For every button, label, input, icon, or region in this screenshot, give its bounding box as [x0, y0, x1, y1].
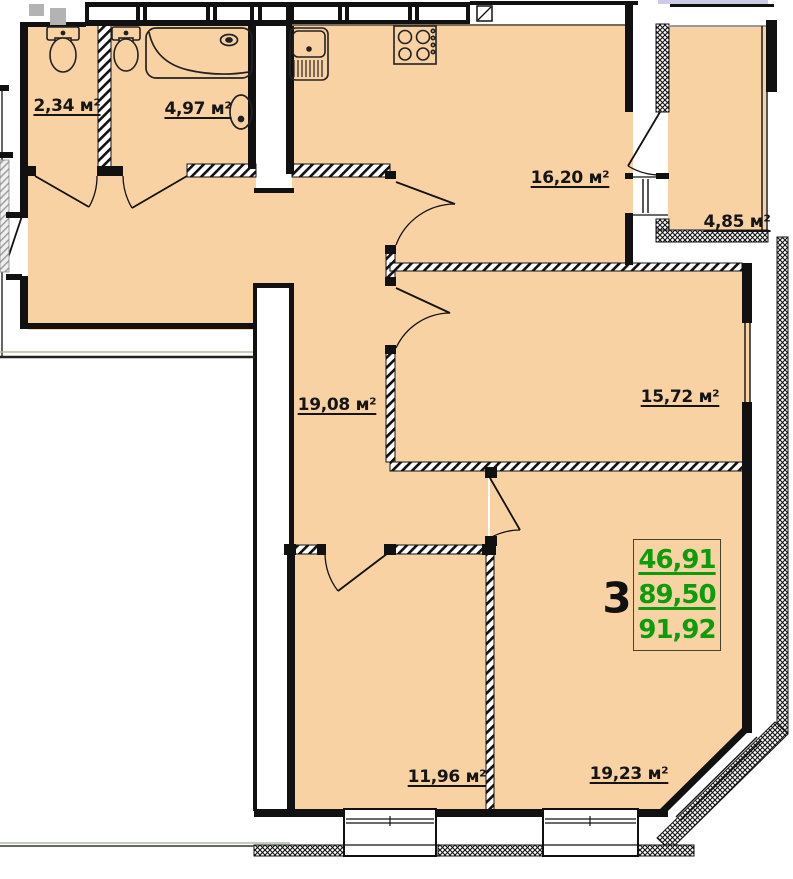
stairwell-stub	[0, 85, 9, 91]
wall-right-2	[742, 405, 752, 472]
summary-value-total: 89,50	[638, 579, 715, 611]
wall-bath-hall-1	[187, 164, 256, 177]
floor-plan: 2,34 м² 4,97 м² 16,20 м² 4,85 м² 19,08 м…	[0, 0, 793, 879]
area-label-bedroom: 15,72 м²	[641, 387, 720, 407]
area-label-hallway: 19,08 м²	[298, 395, 377, 415]
jamb	[485, 467, 497, 478]
stairwell	[0, 85, 22, 356]
wall-right-3	[742, 472, 752, 733]
window-band-top-bar	[85, 2, 470, 7]
outer-strip-bottom-2	[438, 845, 545, 856]
room-floor-bedroom	[390, 265, 750, 470]
summary-value-overall: 91,92	[638, 614, 715, 646]
area-summary-box: 46,91 89,50 91,92	[633, 539, 721, 651]
wall-hall-bedroom	[386, 353, 395, 462]
toilet-icon	[47, 27, 79, 72]
top-right-edge-line	[670, 4, 774, 7]
area-label-kitchen: 16,20 м²	[531, 168, 610, 188]
neighbor-outline	[0, 352, 290, 846]
wall-kitchen-right-lower	[625, 213, 633, 265]
top-windows-band	[29, 0, 774, 26]
jamb	[384, 544, 396, 555]
area-label-wc: 2,34 м²	[33, 96, 100, 116]
jamb	[385, 245, 396, 254]
wall-left-lower	[20, 276, 28, 329]
jamb	[385, 171, 396, 179]
wall-hallway-southwest	[20, 323, 257, 329]
room-floor-hallway-mid	[292, 300, 390, 553]
wall-kitchen-right-upper	[625, 1, 633, 112]
area-label-balcony: 4,85 м²	[703, 212, 770, 232]
outer-strip-bottom-3	[636, 845, 694, 856]
room-floor-balcony	[668, 26, 766, 232]
toilet-icon	[112, 27, 140, 71]
jamb	[28, 166, 36, 176]
outer-strip-bottom-1	[254, 845, 344, 856]
jamb	[656, 173, 669, 179]
entrance-jamb	[6, 212, 22, 218]
vent-shaft-gray-2	[50, 8, 66, 25]
wall-left-upper	[20, 22, 28, 218]
wall-balcony-left-upper	[656, 24, 669, 112]
area-label-child-room: 11,96 м²	[408, 767, 487, 787]
room-floor-vestibule	[388, 462, 488, 553]
vent-shaft-gray-1	[29, 4, 44, 16]
wall-kitchen-right-jamb1	[625, 173, 633, 179]
entrance-jamb	[6, 274, 22, 280]
summary-value-living: 46,91	[638, 544, 715, 576]
stairwell-stub	[0, 152, 13, 158]
shaft-top-cap	[253, 283, 292, 288]
area-label-bathroom: 4,97 м²	[164, 99, 231, 119]
outer-strip-right	[777, 237, 788, 734]
wall-bedroom-top	[390, 263, 742, 271]
wall-child-living	[486, 545, 494, 811]
wall-right-1	[742, 263, 752, 322]
wall-bottom-2	[433, 809, 546, 817]
shaft-right-edge	[289, 283, 294, 547]
area-label-living-room: 19,23 м²	[590, 764, 669, 784]
wall-bath-hall-2	[292, 164, 390, 177]
wall-child-top-2	[394, 545, 484, 554]
jamb	[385, 277, 396, 286]
shaft	[257, 285, 289, 545]
jamb	[284, 544, 296, 555]
wall-bottom-1	[254, 809, 347, 817]
wall-top-right-line	[470, 1, 638, 5]
shaft-left-edge	[253, 283, 257, 811]
wall-child-left	[287, 547, 295, 815]
floor-plan-drawing	[0, 0, 793, 879]
room-floors	[28, 24, 766, 815]
jamb	[97, 166, 123, 176]
wall-bedroom-bottom	[390, 462, 750, 471]
wall-column-cap	[254, 188, 294, 193]
lavender-strip	[658, 0, 768, 4]
jamb	[385, 345, 396, 354]
unit-number: 3	[602, 574, 631, 623]
